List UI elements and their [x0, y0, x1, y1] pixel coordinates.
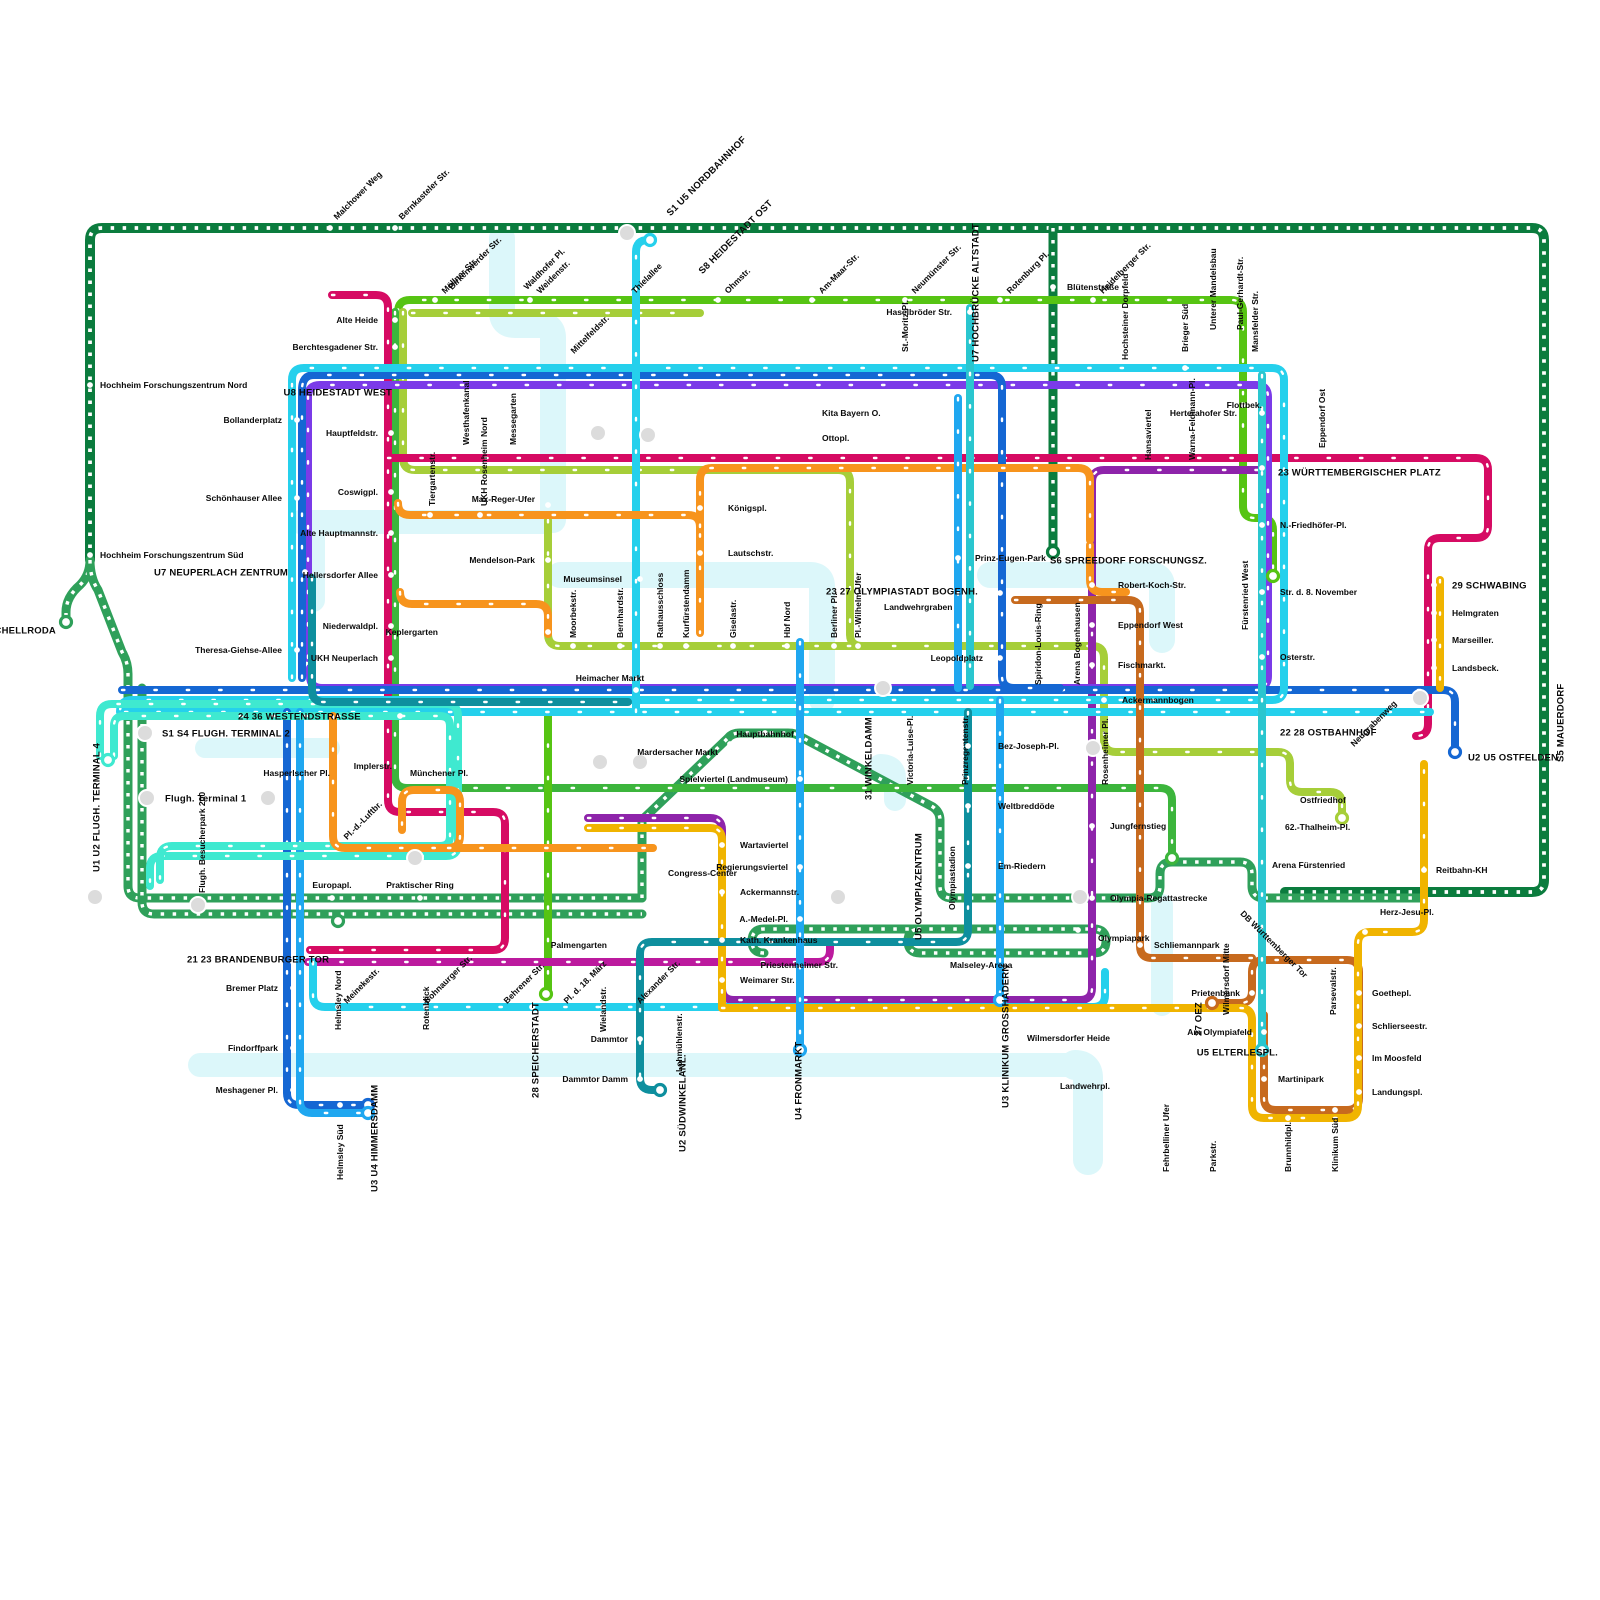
station-dot-4	[294, 495, 300, 501]
station-label-39: Ohmstr.	[722, 266, 752, 296]
terminal-label-75: 29 SCHWABING	[1452, 580, 1527, 591]
terminal-roundel-4	[103, 755, 114, 766]
station-label-96: Europapl.	[312, 880, 351, 890]
station-label-161: Goethepl.	[1372, 988, 1411, 998]
station-dot-150	[1137, 942, 1143, 948]
station-dot-3	[294, 417, 300, 423]
interchange-blob-0	[619, 225, 635, 241]
station-label-42: Rotenburg Pl.	[1004, 249, 1050, 295]
station-dot-115	[637, 1076, 643, 1082]
station-label-55: Mansfelder Str.	[1250, 291, 1260, 352]
station-label-159: Parsevalstr.	[1328, 967, 1338, 1015]
station-dot-21	[545, 629, 551, 635]
station-label-82: Neugrabenweg	[1348, 698, 1398, 748]
station-dot-66	[1259, 522, 1265, 528]
station-dot-167	[1285, 1115, 1291, 1121]
station-dot-1	[87, 382, 93, 388]
station-label-129: Weimarer Str.	[740, 975, 795, 985]
station-label-140: Em-Riedern	[998, 861, 1046, 871]
station-label-13: Hellersdorfer Allee	[303, 570, 379, 580]
station-label-114: Dammtor	[591, 1034, 629, 1044]
station-label-150: Schliemannpark	[1154, 940, 1220, 950]
station-label-103: Meinekestr.	[341, 966, 381, 1006]
station-dot-33	[855, 643, 861, 649]
station-dot-2	[87, 552, 93, 558]
interchange-blob-9	[1072, 889, 1088, 905]
station-label-53: Hochsteiner Dorpfeld	[1120, 274, 1130, 360]
terminal-label-65: 23 WÜRTTEMBERGISCHER PLATZ	[1278, 467, 1441, 478]
station-label-122: Mardersacher Markt	[637, 747, 718, 757]
station-label-40: Am-Maar-Str.	[816, 251, 860, 295]
station-dot-149	[867, 604, 873, 610]
station-label-24: Prinz-Eugen-Park	[975, 553, 1046, 563]
interchange-blob-6	[875, 680, 891, 696]
transit-map: S6 SCHELLRODAHochheim Forschungszentrum …	[0, 0, 1600, 1600]
station-dot-39	[715, 297, 721, 303]
station-dot-151	[1117, 1035, 1123, 1041]
station-dot-11	[388, 489, 394, 495]
terminal-label-99: 21 23 BRANDENBURGER TOR	[187, 954, 329, 965]
station-dot-76	[1431, 610, 1437, 616]
station-dot-123	[797, 776, 803, 782]
station-label-73: Fischmarkt.	[1118, 660, 1166, 670]
station-dot-96	[329, 895, 335, 901]
station-label-28: Rathausschloss	[655, 573, 665, 638]
station-label-50: Haselbröder Str.	[886, 307, 952, 317]
station-label-30: Giselastr.	[728, 600, 738, 638]
station-label-115: Dammtor Damm	[562, 1074, 628, 1084]
interchange-blob-4	[407, 850, 423, 866]
station-dot-23	[697, 550, 703, 556]
station-label-61: Herterahofer Str.	[1170, 408, 1237, 418]
station-label-63: Kita Bayern O.	[822, 408, 881, 418]
terminal-label-137: U3 KLINIKUM GROSSHADERN	[1000, 965, 1011, 1108]
station-dot-68	[1259, 654, 1265, 660]
terminal-label-118: U4 FRONMARKT	[793, 1042, 804, 1120]
interchange-blob-13	[590, 425, 606, 441]
station-label-152: Landwehrpl.	[1060, 1081, 1110, 1091]
station-dot-13	[388, 572, 394, 578]
station-label-142: Jungfernstieg	[1110, 821, 1166, 831]
station-dot-36	[432, 297, 438, 303]
station-dot-122	[727, 741, 733, 747]
station-label-170: Messegarten	[508, 393, 518, 445]
station-dot-163	[1356, 1055, 1362, 1061]
station-dot-148	[997, 590, 1003, 596]
station-dot-42	[997, 297, 1003, 303]
station-dot-29	[683, 643, 689, 649]
station-dot-25	[633, 687, 639, 693]
station-dot-88	[397, 713, 403, 719]
terminal-roundel-3	[645, 235, 656, 246]
station-dot-8	[392, 344, 398, 350]
station-dot-143	[1089, 895, 1095, 901]
station-dot-128	[719, 937, 725, 943]
station-label-95: Münchener Pl.	[410, 768, 468, 778]
terminal-roundel-16	[1207, 998, 1218, 1009]
station-label-165: Fehrbelliner Ufer	[1161, 1103, 1171, 1172]
terminal-label-92: U1 U2 FLUGH. TERMINAL 4	[91, 742, 102, 872]
station-label-133: Victoria-Luise-Pl.	[905, 716, 915, 785]
interchange-blob-3	[190, 897, 206, 913]
station-dot-125	[797, 916, 803, 922]
terminal-label-34: S1 U5 NORDBAHNHOF	[665, 134, 749, 218]
terminal-label-88: 24 36 WESTENDSTRASSE	[238, 711, 361, 722]
station-dot-102	[290, 1087, 296, 1093]
station-label-158: Wilmersdorf Mitte	[1221, 943, 1231, 1015]
station-label-45: Bernkasteler Str.	[396, 167, 451, 222]
station-dot-168	[1332, 1107, 1338, 1113]
terminal-label-148: 23 27 OLYMPIASTADT BOGENH.	[826, 586, 978, 597]
station-label-155: Prietenbank	[1191, 988, 1240, 998]
station-label-67: Str. d. 8. November	[1280, 587, 1358, 597]
interchange-blob-5	[260, 790, 276, 806]
station-dot-75	[1431, 582, 1437, 588]
station-label-57: Paul-Gerhardt-Str.	[1235, 257, 1245, 330]
station-label-162: Schlierseestr.	[1372, 1021, 1427, 1031]
station-label-97: Praktischer Ring	[386, 880, 454, 890]
station-dot-131	[932, 959, 938, 965]
station-label-145: Spiridon-Louis-Ring	[1033, 603, 1043, 685]
station-label-154: Am Olympiafeld	[1187, 1027, 1252, 1037]
interchange-blob-11	[592, 754, 608, 770]
station-label-25: Heimacher Markt	[576, 673, 645, 683]
station-dot-161	[1356, 990, 1362, 996]
station-dot-138	[965, 743, 971, 749]
station-label-17: UKH Rosenheim Nord	[479, 417, 489, 506]
station-dot-140	[965, 863, 971, 869]
terminal-roundel-13	[1268, 571, 1279, 582]
station-label-10: Hauptfeldstr.	[326, 428, 378, 438]
terminal-label-80: U2 U5 OSTFELDEN	[1468, 752, 1558, 763]
station-dot-26	[570, 643, 576, 649]
station-dot-32	[831, 643, 837, 649]
station-label-167: Brunnhildpl.	[1283, 1122, 1293, 1172]
station-dot-154	[1261, 1029, 1267, 1035]
station-label-48: Mittelfeldstr.	[568, 313, 610, 355]
station-label-20: Museumsinsel	[563, 574, 622, 584]
station-label-83: Ostfriedhof	[1300, 795, 1346, 805]
station-label-126: Wartaviertel	[740, 840, 788, 850]
station-dot-17	[477, 512, 483, 518]
station-label-130: Priestenheimer Str.	[761, 960, 838, 970]
station-dot-114	[637, 1036, 643, 1042]
station-label-157: Martinipark	[1278, 1074, 1324, 1084]
station-dot-127	[719, 889, 725, 895]
station-dot-73	[1089, 662, 1095, 668]
interchange-blob-12	[87, 889, 103, 905]
station-label-8: Berchtesgadener Str.	[292, 342, 378, 352]
station-dot-43	[1090, 297, 1096, 303]
station-label-69: Fürstenried West	[1240, 561, 1250, 630]
station-dot-71	[1089, 582, 1095, 588]
station-dot-72	[1089, 622, 1095, 628]
station-label-163: Im Moosfeld	[1372, 1053, 1422, 1063]
line-s-med-central-diag-dashes	[642, 733, 1420, 898]
station-dot-97	[417, 895, 423, 901]
station-dot-142	[1089, 823, 1095, 829]
station-label-111: Rotenblick	[421, 986, 431, 1030]
station-label-32: Berliner Pl.	[829, 593, 839, 638]
station-label-101: Findorffpark	[228, 1043, 278, 1053]
station-label-134: Prinzregentenstr.	[960, 716, 970, 785]
station-label-71: Robert-Koch-Str.	[1118, 580, 1186, 590]
station-label-125: A.-Medel-Pl.	[739, 914, 788, 924]
station-label-64: Ottopl.	[822, 433, 849, 443]
station-label-93: Hasperlscher Pl.	[263, 768, 330, 778]
station-label-66: N.-Friedhöfer-Pl.	[1280, 520, 1347, 530]
station-label-72: Eppendorf West	[1118, 620, 1183, 630]
terminal-label-132: 31 WINKELDAMM	[863, 717, 874, 800]
station-dot-141	[1075, 927, 1081, 933]
station-dot-78	[1431, 665, 1437, 671]
station-label-41: Neumünster Str.	[909, 242, 962, 295]
station-label-21: Keplergarten	[386, 627, 438, 637]
station-label-84: 62.-Thalheim-Pl.	[1285, 822, 1350, 832]
station-dot-15	[388, 655, 394, 661]
station-dot-30	[730, 643, 736, 649]
station-label-143: Olympia-Regattastrecke	[1110, 893, 1208, 903]
line-dark-orange-east	[1015, 600, 1252, 958]
station-label-168: Klinikum Süd	[1330, 1118, 1340, 1172]
station-dot-119	[619, 939, 625, 945]
station-dot-45	[392, 225, 398, 231]
station-label-113: Wielandstr.	[598, 987, 608, 1032]
station-dot-16	[427, 512, 433, 518]
line-dark-orange-east-ticks	[1015, 600, 1252, 958]
station-dot-37	[527, 297, 533, 303]
station-dot-22	[697, 505, 703, 511]
station-label-6: Theresa-Giehse-Allee	[195, 645, 282, 655]
station-dot-86	[1421, 867, 1427, 873]
station-label-1: Hochheim Forschungszentrum Nord	[100, 380, 247, 390]
station-label-11: Coswigpl.	[338, 487, 378, 497]
station-label-119: Palmengarten	[551, 940, 607, 950]
interchange-blob-7	[1412, 690, 1428, 706]
terminal-roundel-2	[333, 916, 344, 927]
station-label-3: Bollanderplatz	[223, 415, 282, 425]
terminal-label-89: S1 S4 FLUGH. TERMINAL 2	[162, 728, 290, 739]
station-dot-139	[965, 803, 971, 809]
station-label-94: Implerstr.	[354, 761, 392, 771]
station-label-124: Regierungsviertel	[716, 862, 788, 872]
station-label-12: Alte Hauptmannstr.	[300, 528, 378, 538]
station-label-14: Niederwaldpl.	[323, 621, 378, 631]
station-dot-28	[657, 643, 663, 649]
station-dot-124	[797, 864, 803, 870]
interchange-blob-2	[139, 790, 155, 806]
station-dot-7	[392, 317, 398, 323]
terminal-label-117: U2 SÜDWINKELANL.	[677, 1054, 688, 1152]
station-label-7: Alte Heide	[336, 315, 378, 325]
station-dot-129	[719, 977, 725, 983]
terminal-label-51: U7 HOCHBRÜCKE ALTSTADT	[970, 223, 981, 362]
station-label-60: Warna-Feldmann-Pl.	[1187, 378, 1197, 460]
station-dot-157	[1261, 1076, 1267, 1082]
station-dot-93	[342, 770, 348, 776]
station-dot-40	[809, 297, 815, 303]
station-dot-65	[1259, 465, 1265, 471]
interchange-blob-15	[640, 427, 656, 443]
station-dot-130	[849, 959, 855, 965]
terminal-roundel-0	[61, 617, 72, 628]
station-label-144: Rosenheimer Pl.	[1100, 718, 1110, 785]
station-label-77: Marseiller.	[1452, 635, 1494, 645]
station-dot-67	[1259, 589, 1265, 595]
station-dot-61	[1259, 410, 1265, 416]
station-dot-162	[1356, 1023, 1362, 1029]
station-label-87: Herz-Jesu-Pl.	[1380, 907, 1434, 917]
station-label-102: Meshagener Pl.	[216, 1085, 278, 1095]
terminal-label-112: 28 SPEICHERSTADT	[530, 1002, 541, 1098]
station-label-141: Olympiapark	[1098, 933, 1150, 943]
line-teal-west-ticks	[312, 578, 628, 702]
station-label-166: Parkstr.	[1208, 1141, 1218, 1172]
station-label-100: Bremer Platz	[226, 983, 278, 993]
terminal-label-9: U8 HEIDESTADT WEST	[284, 387, 392, 398]
station-label-169: Westhafenkanal	[461, 380, 471, 445]
station-label-54: Brieger Süd	[1180, 304, 1190, 352]
station-dot-12	[388, 530, 394, 536]
station-label-91: Flugh. Besucherpark 200	[197, 792, 207, 893]
station-label-128: Kath. Krankenhaus	[740, 935, 818, 945]
station-dot-19	[545, 557, 551, 563]
station-dot-101	[290, 1045, 296, 1051]
station-dot-164	[1356, 1089, 1362, 1095]
station-label-74: Ackermannbogen	[1122, 695, 1194, 705]
station-label-62: Eppendorf Ost	[1317, 389, 1327, 448]
terminal-label-81: S5 MAUERDORF	[1555, 684, 1566, 762]
station-dot-94	[399, 763, 405, 769]
station-label-98: Pl.-d.-Luftbr.	[341, 799, 383, 841]
station-label-22: Königspl.	[728, 503, 767, 513]
station-label-135: Olympiastadion	[947, 846, 957, 910]
station-label-123: Spielviertel (Landmuseum)	[679, 774, 788, 784]
station-label-18: Max-Reger-Ufer	[472, 494, 536, 504]
station-dot-24	[955, 555, 961, 561]
station-dot-74	[1101, 697, 1107, 703]
station-dot-108	[337, 1102, 343, 1108]
line-teal-west	[312, 578, 628, 702]
terminal-label-136: U5 OLYMPIAZENTRUM	[913, 833, 924, 940]
terminal-roundel-7	[655, 1085, 666, 1096]
station-label-139: Weltbreddöde	[998, 801, 1055, 811]
station-dot-87	[1362, 929, 1368, 935]
station-label-146: Arena Bogenhausen	[1072, 602, 1082, 685]
station-label-138: Bez-Joseph-Pl.	[998, 741, 1059, 751]
station-label-59: Hansaviertel	[1143, 409, 1153, 460]
station-dot-120	[647, 870, 653, 876]
station-label-147: Leopoldplatz	[931, 653, 983, 663]
station-label-16: Tiergartenstr.	[427, 452, 437, 506]
station-dot-31	[784, 643, 790, 649]
station-label-127: Ackermannstr.	[740, 887, 799, 897]
station-label-44: Malchower Weg	[331, 169, 383, 221]
terminal-label-5: U7 NEUPERLACH ZENTRUM	[154, 567, 288, 578]
line-s-med-central-diag	[642, 733, 1420, 898]
station-dot-18	[545, 502, 551, 508]
station-dot-44	[327, 225, 333, 231]
station-dot-126	[719, 842, 725, 848]
station-label-31: Hbf Nord	[782, 602, 792, 638]
interchange-blob-14	[1085, 740, 1101, 756]
station-label-56: Unterer Mandelsbau	[1208, 248, 1218, 330]
terminal-roundel-10	[1167, 853, 1178, 864]
station-label-110: Helmsley Nord	[333, 970, 343, 1030]
station-label-68: Osterstr.	[1280, 652, 1315, 662]
terminal-label-156: U5 ELTERLESPL.	[1197, 1047, 1278, 1058]
station-label-26: Moorbekstr.	[568, 590, 578, 638]
terminal-label-109: U3 U4 HIMMERSDAMM	[369, 1085, 380, 1192]
station-dot-166	[1210, 1111, 1216, 1117]
station-label-27: Bernhardstr.	[615, 587, 625, 638]
station-dot-10	[388, 430, 394, 436]
station-label-19: Mendelson-Park	[469, 555, 535, 565]
station-label-78: Landsbeck.	[1452, 663, 1499, 673]
station-label-108: Helmsley Süd	[335, 1124, 345, 1180]
station-dot-147	[997, 655, 1003, 661]
station-label-23: Lautschstr.	[728, 548, 773, 558]
station-label-151: Wilmersdorfer Heide	[1027, 1033, 1110, 1043]
station-dot-54	[1182, 365, 1188, 371]
station-label-76: Helmgraten	[1452, 608, 1499, 618]
station-label-86: Reitbahn-KH	[1436, 865, 1487, 875]
station-label-121: Hauptbahnhof	[736, 729, 794, 739]
station-label-29: Kurfürstendamm	[681, 569, 691, 638]
station-label-149: Landwehrgraben	[884, 602, 952, 612]
terminal-label-70: S6 SPREEDORF FORSCHUNGSZ.	[1050, 555, 1207, 566]
station-dot-100	[290, 985, 296, 991]
transit-map-svg: S6 SCHELLRODAHochheim Forschungszentrum …	[0, 0, 1600, 1600]
station-label-49: Blütenstraße	[1067, 282, 1119, 292]
station-label-33: Pl.-Wilhelm-Ufer	[853, 572, 863, 638]
station-label-2: Hochheim Forschungszentrum Süd	[100, 550, 244, 560]
station-dot-152	[1117, 1083, 1123, 1089]
station-label-15: UKH Neuperlach	[311, 653, 378, 663]
terminal-roundel-12	[541, 989, 552, 1000]
station-label-164: Landungspl.	[1372, 1087, 1423, 1097]
station-dot-155	[1249, 990, 1255, 996]
terminal-label-0: S6 SCHELLRODA	[0, 625, 56, 636]
station-dot-20	[637, 576, 643, 582]
interchange-blob-8	[830, 889, 846, 905]
station-label-105: Behrener Str.	[501, 961, 546, 1006]
station-label-85: Arena Fürstenried	[1272, 860, 1345, 870]
station-label-52: St.-Moritz-Pl.	[900, 300, 910, 352]
station-dot-27	[617, 643, 623, 649]
river-segment-7	[1075, 1065, 1088, 1160]
station-dot-77	[1431, 637, 1437, 643]
station-dot-6	[294, 647, 300, 653]
terminal-label-35: S8 HEIDESTADT OST	[697, 198, 775, 276]
terminal-roundel-9	[1450, 747, 1461, 758]
station-label-4: Schönhauser Allee	[206, 493, 282, 503]
interchange-blob-1	[137, 725, 153, 741]
station-dot-49	[1050, 284, 1056, 290]
